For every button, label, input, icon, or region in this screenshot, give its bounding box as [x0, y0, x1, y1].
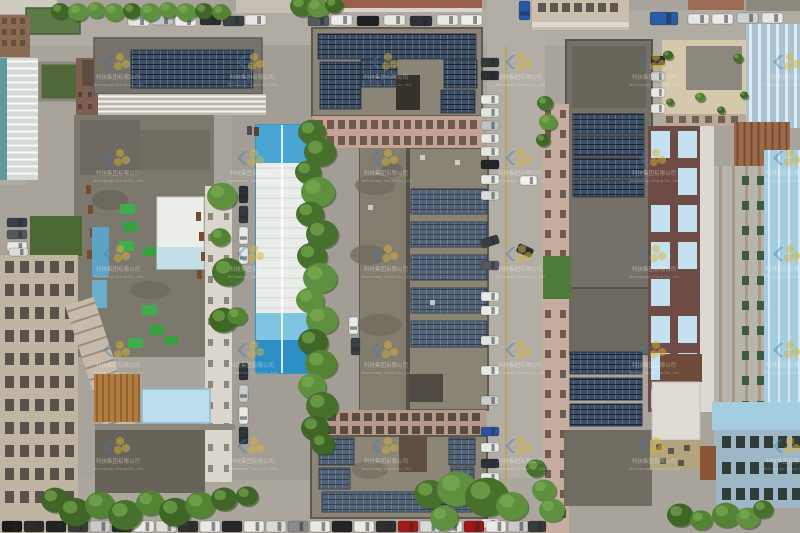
tree-highlight: [189, 495, 203, 507]
windows: [437, 120, 444, 129]
car-windshield: [491, 109, 494, 116]
windows: [352, 413, 360, 421]
truck-blue-windshield: [666, 13, 671, 24]
car-body: [351, 338, 360, 355]
watermark-text-en: Technology Group Co., Ltd: [628, 466, 679, 471]
car: [349, 317, 358, 334]
tree-highlight: [538, 135, 544, 141]
windows: [400, 413, 408, 421]
plant-highlight: [664, 52, 669, 56]
hedge: [30, 216, 82, 256]
car-windshield: [19, 219, 23, 226]
tree-highlight: [500, 495, 514, 508]
watermark-text-en: Technology Group Co., Ltd: [226, 370, 277, 375]
windows: [208, 444, 213, 451]
watermark-text-zh: 科技集团有限公司: [632, 457, 676, 465]
car-body: [349, 317, 358, 334]
car-windshield: [700, 15, 704, 23]
car-red-windshield: [476, 522, 480, 531]
green-machine: [150, 325, 164, 335]
tree-highlight: [230, 309, 239, 317]
solar-array: [441, 90, 475, 113]
car-body: [357, 16, 379, 26]
car: [410, 16, 432, 26]
car-windshield: [491, 72, 494, 79]
watermark-text-zh: 科技集团有限公司: [96, 265, 140, 273]
storefront-strip: [336, 8, 482, 12]
car-body: [245, 15, 266, 25]
windows: [742, 251, 749, 260]
windows: [792, 488, 800, 500]
skylights: [678, 205, 697, 232]
windows: [764, 436, 773, 448]
car-windshield: [724, 15, 728, 23]
car-body: [481, 396, 499, 405]
car-windshield: [396, 16, 400, 24]
windows: [560, 310, 566, 318]
windows: [20, 40, 25, 46]
windows: [722, 462, 731, 474]
bush-highlight: [197, 5, 205, 12]
watermark-text-zh: 科技集团有限公司: [364, 265, 408, 273]
watermark-text-en: Technology Group Co., Ltd: [360, 370, 411, 375]
windows: [393, 120, 400, 129]
tree-highlight: [302, 122, 315, 133]
right-block-roof-lower: [566, 288, 652, 354]
watermark-text-en: Technology Group Co., Ltd: [226, 178, 277, 183]
roof-stain: [358, 314, 402, 336]
car: [481, 108, 499, 117]
windows: [393, 136, 400, 145]
car-windshield: [240, 195, 247, 198]
watermark-text-en: Technology Group Co., Ltd: [494, 370, 545, 375]
windows: [560, 370, 566, 378]
car-body: [712, 14, 733, 24]
car-red-windshield: [410, 522, 414, 531]
tree-canopy: [690, 510, 712, 529]
car: [651, 104, 665, 113]
watermark-text-zh: 科技集团有限公司: [230, 361, 274, 369]
windows: [415, 136, 422, 145]
bush-highlight: [179, 5, 188, 13]
windows: [400, 426, 408, 434]
ac-unit: [455, 160, 460, 165]
windows: [20, 353, 29, 365]
watermark-text-zh: 科技集团有限公司: [96, 457, 140, 465]
windows: [742, 276, 749, 285]
watermark-text-en: Technology Group Co., Ltd: [226, 466, 277, 471]
car: [481, 396, 499, 405]
watermark-text-zh: 科技集团有限公司: [498, 361, 542, 369]
tree-canopy: [537, 96, 553, 110]
car: [239, 227, 248, 244]
windows: [65, 399, 74, 411]
windows: [5, 307, 14, 319]
car-body: [310, 521, 330, 532]
windows: [560, 110, 566, 118]
windows: [586, 3, 594, 12]
car-body: [200, 521, 220, 532]
solar-array-sheen: [319, 468, 350, 489]
car-body: [7, 230, 27, 239]
car-body: [7, 218, 27, 227]
red-tile-roofs: [688, 0, 744, 10]
tree-highlight: [239, 488, 249, 497]
windows: [35, 330, 44, 342]
tree-highlight: [739, 510, 750, 520]
windows: [5, 445, 14, 457]
windows: [404, 120, 411, 129]
solar-row: [573, 136, 644, 156]
windows: [742, 376, 749, 385]
windows: [338, 136, 345, 145]
car: [244, 521, 264, 532]
car-red: [464, 521, 484, 532]
car: [384, 15, 405, 25]
tree-canopy: [536, 134, 550, 146]
windows: [2, 29, 7, 35]
van-windshield: [20, 249, 23, 255]
windows: [224, 381, 229, 388]
windows: [692, 116, 699, 123]
windows: [208, 360, 213, 367]
watermark-text-zh: 科技集团有限公司: [632, 73, 676, 81]
tree-canopy: [667, 504, 693, 527]
car-red-body: [398, 521, 418, 532]
car-windshield: [352, 347, 359, 350]
windows: [376, 426, 384, 434]
car-windshield: [343, 16, 347, 24]
windows: [20, 284, 29, 296]
car: [2, 521, 22, 532]
tree-canopy: [185, 492, 215, 518]
van-body: [9, 248, 28, 256]
watermark-text-en: Technology Group Co., Ltd: [360, 274, 411, 279]
watermark-text-zh: 科技集团有限公司: [498, 169, 542, 177]
car-windshield: [491, 397, 494, 404]
car-windshield: [491, 192, 494, 199]
green-machine: [143, 247, 156, 256]
car: [239, 206, 248, 223]
tree-highlight: [305, 180, 320, 194]
tree-highlight: [89, 495, 103, 507]
plant-highlight: [667, 99, 671, 102]
roof-patch: [80, 120, 140, 175]
car: [481, 261, 499, 270]
windows: [376, 413, 384, 421]
car: [688, 14, 709, 24]
windows: [5, 261, 14, 273]
watermark-text-zh: 科技集团有限公司: [766, 169, 800, 177]
windows: [750, 462, 759, 474]
car-body: [332, 521, 352, 532]
car-windshield: [538, 522, 541, 531]
windows: [224, 213, 229, 220]
windows: [35, 468, 44, 480]
tree-canopy: [539, 114, 557, 130]
tree-canopy: [227, 307, 247, 325]
car-windshield: [256, 522, 260, 531]
windows: [742, 201, 749, 210]
tree-highlight: [45, 490, 58, 501]
car-body: [24, 521, 44, 532]
windows: [35, 284, 44, 296]
windows: [88, 92, 92, 97]
car-windshield: [234, 522, 238, 531]
watermark-text-en: Technology Group Co., Ltd: [628, 82, 679, 87]
windows: [88, 104, 92, 109]
skylights: [651, 205, 670, 232]
car-windshield: [240, 394, 247, 397]
car-body: [481, 147, 499, 156]
windows: [224, 339, 229, 346]
skylights: [678, 242, 697, 269]
windows: [459, 136, 466, 145]
car: [481, 95, 499, 104]
bush-highlight: [53, 5, 61, 12]
solar-row: [570, 404, 642, 426]
plant-canopy: [733, 54, 743, 63]
car-windshield: [240, 236, 247, 239]
car: [288, 521, 308, 532]
car-windshield: [257, 16, 261, 24]
windows: [20, 445, 29, 457]
watermark-text-zh: 科技集团有限公司: [364, 457, 408, 465]
windows: [742, 351, 749, 360]
windows: [426, 136, 433, 145]
car-body: [737, 13, 758, 23]
car-windshield: [491, 59, 494, 66]
windows: [742, 326, 749, 335]
windows: [65, 376, 74, 388]
watermark-text-en: Technology Group Co., Ltd: [762, 82, 800, 87]
tree-highlight: [670, 506, 682, 516]
bush-canopy: [195, 3, 213, 19]
tree-canopy: [311, 433, 335, 454]
car: [481, 336, 499, 345]
tree-canopy: [207, 183, 237, 209]
windows: [224, 402, 229, 409]
roof-stain: [130, 281, 170, 299]
windows: [679, 116, 686, 123]
car: [737, 13, 758, 23]
car-body: [481, 160, 499, 169]
windows: [545, 450, 551, 458]
skylights: [651, 316, 670, 343]
car-blue-windshield: [520, 11, 529, 15]
solar-band-sheen: [411, 255, 487, 280]
watermark-text-zh: 科技集团有限公司: [498, 73, 542, 81]
windows: [560, 190, 566, 198]
watermark-text-zh: 科技集团有限公司: [632, 169, 676, 177]
windows: [666, 116, 673, 123]
windows: [560, 230, 566, 238]
bush-canopy: [176, 3, 196, 21]
tree-highlight: [63, 501, 77, 514]
tree-canopy: [539, 499, 565, 522]
windows: [2, 18, 7, 24]
windows: [448, 426, 456, 434]
tree-highlight: [211, 186, 225, 198]
car-windshield: [449, 16, 453, 24]
windows: [208, 465, 213, 472]
plant-highlight: [734, 55, 739, 59]
windows: [208, 339, 213, 346]
windows: [360, 120, 367, 129]
watermark-text-en: Technology Group Co., Ltd: [92, 466, 143, 471]
windows: [778, 488, 787, 500]
car-windshield: [749, 14, 753, 22]
car: [461, 15, 482, 25]
car: [481, 292, 499, 301]
bush-canopy: [68, 3, 88, 21]
car: [24, 521, 44, 532]
car: [222, 521, 242, 532]
tree-highlight: [302, 376, 315, 387]
windows: [470, 136, 477, 145]
tree-highlight: [213, 310, 226, 321]
lightblue-roof: [142, 389, 210, 423]
car-red: [398, 521, 418, 532]
green-machine: [128, 338, 143, 348]
car-windshield: [491, 135, 494, 142]
windows: [65, 445, 74, 457]
watermark-text-zh: 科技集团有限公司: [230, 169, 274, 177]
windows: [560, 410, 566, 418]
windows: [560, 150, 566, 158]
windows: [35, 399, 44, 411]
ac-unit: [420, 155, 425, 160]
tree-highlight: [716, 505, 729, 516]
car: [481, 427, 499, 436]
roof-stain: [350, 245, 386, 265]
car-body: [239, 385, 248, 402]
windows: [424, 413, 432, 421]
car-windshield: [491, 293, 494, 300]
windows: [327, 120, 334, 129]
car-body: [354, 521, 374, 532]
car-red-body: [464, 521, 484, 532]
rust-chimney: [87, 250, 92, 259]
windows: [412, 426, 420, 434]
car-body: [481, 134, 499, 143]
tree-highlight: [310, 309, 324, 322]
truck-blue-body: [650, 12, 678, 25]
windows: [470, 120, 477, 129]
car-windshield: [235, 17, 239, 25]
watermark-text-zh: 科技集团有限公司: [766, 457, 800, 465]
car-body: [481, 292, 499, 301]
watermark-text-en: Technology Group Co., Ltd: [360, 466, 411, 471]
windows: [65, 284, 74, 296]
windows: [750, 436, 759, 448]
bush-canopy: [159, 2, 177, 18]
windows: [50, 445, 59, 457]
car-windshield: [491, 444, 494, 451]
tree-highlight: [539, 97, 546, 103]
windows: [560, 330, 566, 338]
car-body: [331, 15, 352, 25]
windows-grid: [2, 18, 25, 46]
water-tank-roof: [40, 63, 80, 100]
solar-array-sheen: [449, 438, 475, 465]
car-windshield: [491, 96, 494, 103]
watermark-text-zh: 科技集团有限公司: [96, 361, 140, 369]
windows: [545, 410, 551, 418]
watermark-text-en: Technology Group Co., Ltd: [360, 82, 411, 87]
tree-canopy: [712, 503, 740, 528]
car-body: [481, 95, 499, 104]
car-body: [288, 521, 308, 532]
roof-patch: [140, 130, 210, 170]
car-blue-body: [519, 1, 530, 20]
car-body: [384, 15, 405, 25]
skylights: [678, 316, 697, 343]
tree-highlight: [300, 290, 313, 301]
windows: [50, 284, 59, 296]
watermark-text-en: Technology Group Co., Ltd: [92, 274, 143, 279]
car-windshield: [370, 17, 374, 25]
car-body: [239, 186, 248, 203]
watermark-text-en: Technology Group Co., Ltd: [762, 274, 800, 279]
car-windshield: [146, 522, 150, 531]
windows: [560, 210, 566, 218]
windows: [65, 468, 74, 480]
tree-highlight: [307, 266, 322, 280]
windows: [736, 462, 745, 474]
car-windshield: [423, 17, 427, 25]
watermark-text-zh: 科技集团有限公司: [96, 73, 140, 81]
windows: [20, 307, 29, 319]
windows: [35, 261, 44, 273]
windows: [349, 136, 356, 145]
watermark-text-zh: 科技集团有限公司: [766, 73, 800, 81]
windows: [20, 422, 29, 434]
car-windshield: [212, 522, 216, 531]
windows: [224, 297, 229, 304]
tree-highlight: [308, 141, 322, 154]
car-body: [528, 521, 546, 532]
watermark-text-en: Technology Group Co., Ltd: [628, 178, 679, 183]
tree-highlight: [418, 483, 432, 496]
bush-canopy: [140, 3, 160, 21]
watermark-text-zh: 科技集团有限公司: [230, 457, 274, 465]
car-body: [239, 407, 248, 424]
watermark-text-en: Technology Group Co., Ltd: [494, 178, 545, 183]
car-windshield: [491, 307, 494, 314]
watermark-text-zh: 科技集团有限公司: [364, 169, 408, 177]
windows: [35, 445, 44, 457]
windows: [388, 413, 396, 421]
windows: [742, 176, 749, 185]
windows: [545, 350, 551, 358]
bush-canopy: [104, 3, 124, 21]
watermark-text-en: Technology Group Co., Ltd: [92, 370, 143, 375]
car-windshield: [366, 522, 370, 531]
windows: [340, 426, 348, 434]
green-machine: [123, 222, 137, 232]
windows: [364, 426, 372, 434]
tree-highlight: [301, 246, 315, 258]
car: [46, 521, 66, 532]
watermark-text-zh: 科技集团有限公司: [364, 73, 408, 81]
car: [508, 521, 528, 532]
car-body: [508, 521, 528, 532]
windows: [722, 436, 731, 448]
watermark-text-zh: 科技集团有限公司: [230, 265, 274, 273]
windows: [742, 301, 749, 310]
car: [481, 121, 499, 130]
